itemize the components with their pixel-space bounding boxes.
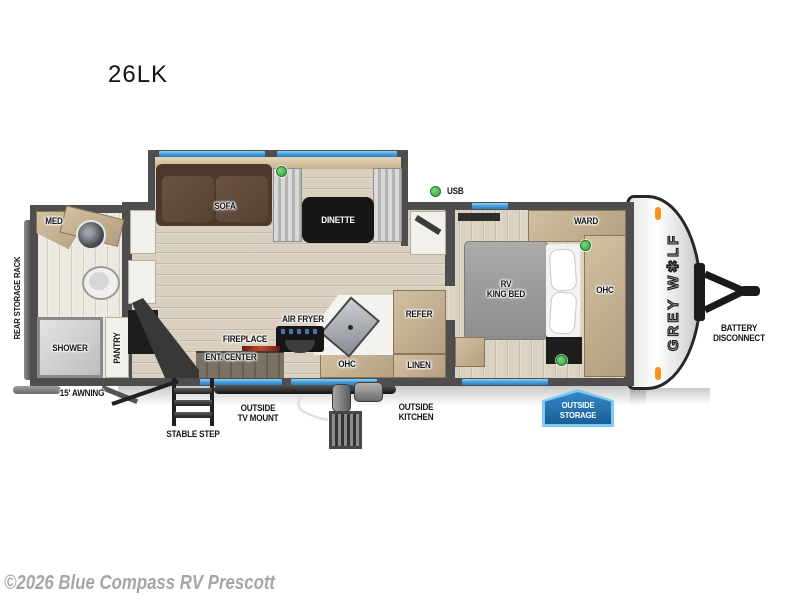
outside-kitchen-line1: OUTSIDE bbox=[399, 402, 434, 412]
rear-storage-rack-label: REAR STORAGE RACK bbox=[12, 257, 22, 340]
ent-center-label: ENT. CENTER bbox=[205, 352, 256, 362]
ward-label: WARD bbox=[574, 216, 598, 226]
outside-kitchen-label: OUTSIDE KITCHEN bbox=[399, 402, 434, 422]
king-bed-label: RV KING BED bbox=[487, 279, 525, 299]
linen-label: LINEN bbox=[407, 360, 430, 370]
kitchen-ohc-label: OHC bbox=[338, 359, 355, 369]
outside-storage-line1: OUTSIDE bbox=[560, 400, 596, 410]
outside-tv-mount-line2: TV MOUNT bbox=[238, 413, 279, 423]
outside-kitchen-pot bbox=[332, 384, 351, 412]
stable-step-label: STABLE STEP bbox=[166, 429, 219, 439]
outside-kitchen-line2: KITCHEN bbox=[399, 412, 434, 422]
indicator-dot-bed-foot bbox=[556, 355, 567, 366]
usb-indicator-dot bbox=[430, 186, 441, 197]
indicator-dot-ward bbox=[580, 240, 591, 251]
usb-label: USB bbox=[447, 186, 464, 196]
battery-disconnect-line1: BATTERY bbox=[713, 323, 765, 333]
dealer-watermark: ©2026 Blue Compass RV Prescott bbox=[4, 572, 275, 595]
outside-kitchen-griddle bbox=[329, 411, 362, 449]
battery-disconnect-line2: DISCONNECT bbox=[713, 333, 765, 343]
med-label: MED bbox=[45, 216, 62, 226]
awning-label: 15' AWNING bbox=[60, 388, 104, 398]
outside-storage-line2: STORAGE bbox=[560, 410, 596, 420]
pantry-label: PANTRY bbox=[112, 332, 122, 363]
air-fryer-label: AIR FRYER bbox=[282, 314, 324, 324]
indicator-dot-slideout bbox=[276, 166, 287, 177]
fireplace-label: FIREPLACE bbox=[223, 334, 267, 344]
sofa-label: SOFA bbox=[214, 201, 235, 211]
refer-label: REFER bbox=[406, 309, 433, 319]
outside-tv-mount-line1: OUTSIDE bbox=[238, 403, 279, 413]
outside-tv-mount-label: OUTSIDE TV MOUNT bbox=[238, 403, 279, 423]
bedroom-ohc-label: OHC bbox=[596, 285, 613, 295]
king-bed-label-line2: KING BED bbox=[487, 289, 525, 299]
battery-disconnect-label: BATTERY DISCONNECT bbox=[713, 323, 765, 343]
outside-kitchen-cord bbox=[0, 0, 800, 600]
floorplan-image: 26LK bbox=[0, 0, 800, 600]
outside-storage-label: OUTSIDE STORAGE bbox=[560, 400, 596, 420]
dinette-label: DINETTE bbox=[321, 215, 354, 225]
king-bed-label-line1: RV bbox=[487, 279, 525, 289]
outside-kitchen-basin bbox=[354, 382, 383, 402]
shower-label: SHOWER bbox=[52, 343, 87, 353]
